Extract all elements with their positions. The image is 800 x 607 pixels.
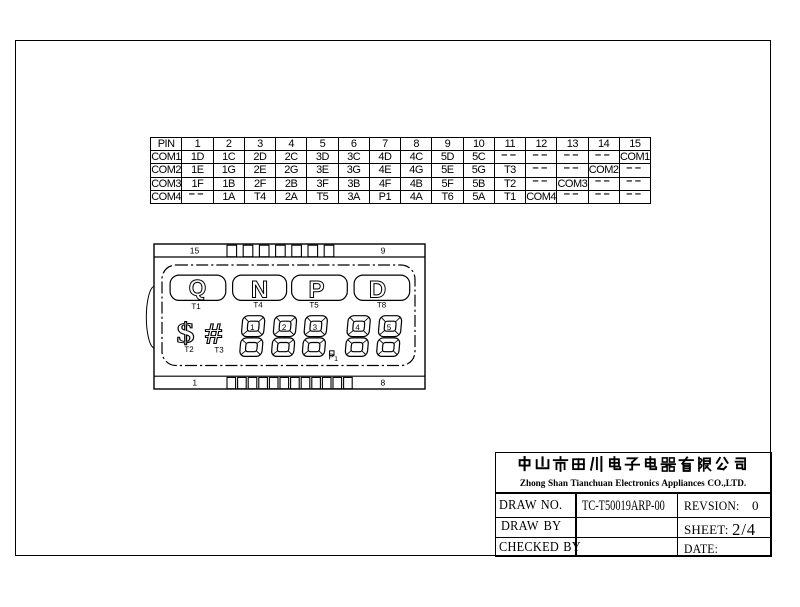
svg-text:D: D: [369, 276, 386, 303]
svg-text:1: 1: [250, 323, 255, 332]
svg-text:3: 3: [313, 323, 318, 332]
svg-text:T4: T4: [253, 301, 263, 310]
svg-text:9: 9: [381, 246, 386, 256]
svg-text:P: P: [308, 276, 324, 303]
svg-text:T3: T3: [214, 346, 224, 355]
svg-text:Q: Q: [189, 275, 207, 300]
svg-text:4: 4: [355, 323, 360, 332]
svg-text:T5: T5: [309, 301, 319, 310]
svg-text:8: 8: [381, 377, 386, 387]
svg-text:T1: T1: [191, 302, 201, 311]
svg-text:2: 2: [282, 323, 287, 332]
svg-text:5: 5: [387, 323, 392, 332]
svg-text:T8: T8: [377, 301, 387, 310]
svg-text:P1: P1: [328, 352, 338, 364]
svg-text:1: 1: [192, 377, 197, 387]
svg-text:15: 15: [190, 246, 200, 256]
svg-text:T2: T2: [184, 345, 194, 354]
svg-text:N: N: [251, 276, 268, 303]
